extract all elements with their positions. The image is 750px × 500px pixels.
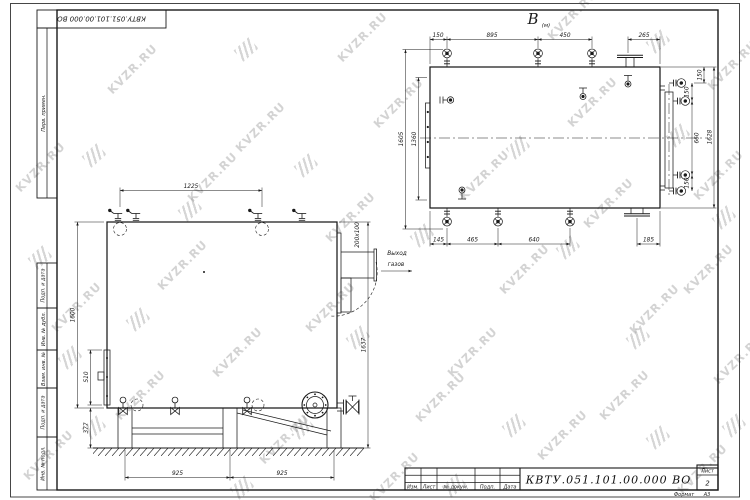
titleblock-col: Подп.	[480, 485, 495, 491]
sidebar-label: Инв. № подл.	[41, 446, 47, 481]
tank-outline	[430, 67, 660, 208]
sheet-label: Лист	[700, 469, 715, 475]
gas-outlet-duct	[330, 233, 377, 316]
sidebar-label: Инв. № дубл.	[41, 312, 47, 346]
sidebar-label: Перв. примен.	[41, 94, 47, 132]
dim-label: 1600	[71, 307, 77, 322]
dim-label: 150	[685, 86, 691, 97]
valve-plan-icon	[494, 208, 503, 226]
side-gate-valve-icon	[337, 396, 359, 415]
dim-label: 1637	[361, 337, 367, 352]
dims-top: 150 895 450 265	[430, 33, 660, 64]
dim-label: 185	[643, 238, 654, 244]
dim-label: 660	[695, 132, 701, 143]
sidebar-label: Взам. инв. №	[41, 352, 47, 386]
dim-label: 465	[467, 238, 478, 244]
manhole-flange-icon	[302, 392, 328, 418]
dim-label: 1628	[708, 129, 714, 144]
valve-side-icon	[109, 209, 123, 220]
drawing-svg: КВТУ.051.101.00.000 ВО Перв. примен. Под…	[0, 0, 750, 500]
valve-plan-icon	[443, 49, 452, 67]
dim-label: 1605	[399, 131, 405, 146]
sidebar-label: Подп. и дата	[41, 395, 47, 429]
dim-label: 1225	[184, 184, 199, 190]
valve-right-icon	[669, 79, 686, 88]
support-legs	[118, 408, 341, 448]
internal-valve-icon	[458, 187, 466, 199]
titleblock-col: Лист	[422, 485, 437, 491]
valve-plan-icon	[443, 208, 452, 226]
flange-top-icon	[617, 55, 643, 67]
valve-plan-icon	[588, 49, 597, 67]
dim-label: 145	[433, 238, 444, 244]
dim-label: 150	[698, 69, 704, 80]
dims-left: 1605 1360	[399, 50, 443, 230]
view-label: В	[526, 10, 538, 28]
vessel-outline	[107, 222, 337, 408]
titleblock-col: № докум.	[443, 485, 469, 491]
front-dims: 1225 1600 510 377 1637 925 925	[71, 184, 371, 481]
title-block: Изм. Лист № докум. Подп. Дата КВТУ.051.1…	[405, 465, 718, 498]
format-label: Формат	[674, 492, 695, 498]
dim-label: 450	[559, 33, 570, 39]
drain-valve-icon	[119, 397, 128, 414]
dim-label: 895	[486, 33, 497, 39]
titleblock-col: Изм.	[407, 485, 419, 491]
dim-label: 265	[638, 33, 649, 39]
stamp-doc-number: КВТУ.051.101.00.000 ВО	[57, 15, 146, 23]
dim-label: 150	[432, 33, 443, 39]
access-door	[98, 350, 110, 405]
dim-label: 1360	[412, 131, 418, 146]
outlet-label: газов	[388, 262, 405, 268]
valve-plan-icon	[534, 49, 543, 67]
internal-valve-icon	[579, 88, 587, 100]
sheet-border	[11, 4, 740, 498]
dim-label: 640	[528, 238, 539, 244]
flange-bottom-icon	[624, 208, 650, 216]
format-value: А3	[703, 492, 711, 498]
dim-label: 377	[84, 422, 90, 433]
sheet-number: 2	[705, 480, 710, 488]
dim-label: 925	[276, 471, 287, 477]
internal-valve-icon	[624, 76, 632, 88]
sidebar: Перв. примен. Подп. и дата Инв. № дубл. …	[37, 28, 57, 490]
internal-valve-icon	[440, 97, 454, 104]
ground-hatch	[93, 448, 364, 456]
front-view: 200x100 Выход газов	[71, 184, 413, 481]
dims-right: 150 150 660 150 1628	[661, 67, 717, 208]
sidebar-label: Подп. и дата	[41, 268, 47, 302]
dim-label: 925	[172, 471, 183, 477]
top-view: В (м)	[399, 10, 716, 247]
drain-valve-icon	[171, 397, 180, 414]
drawing-sheet: KVZR.RUKVZR.RUKVZR.RUKVZR.RUKVZR.RUKVZR.…	[0, 0, 750, 500]
dim-label: 510	[84, 371, 90, 382]
valve-side-icon	[127, 209, 141, 220]
view-label-sub: (м)	[542, 23, 550, 29]
valve-plan-icon	[566, 208, 575, 226]
drawing-frame	[57, 10, 718, 490]
valve-side-icon	[293, 209, 307, 220]
dim-label: 150	[685, 177, 691, 188]
outlet-label: Выход	[387, 251, 407, 257]
titleblock-col: Дата	[503, 485, 517, 491]
titleblock-doc-number: КВТУ.051.101.00.000 ВО	[525, 474, 691, 487]
valve-side-icon	[249, 209, 263, 220]
duct-size-label: 200x100	[355, 222, 361, 248]
